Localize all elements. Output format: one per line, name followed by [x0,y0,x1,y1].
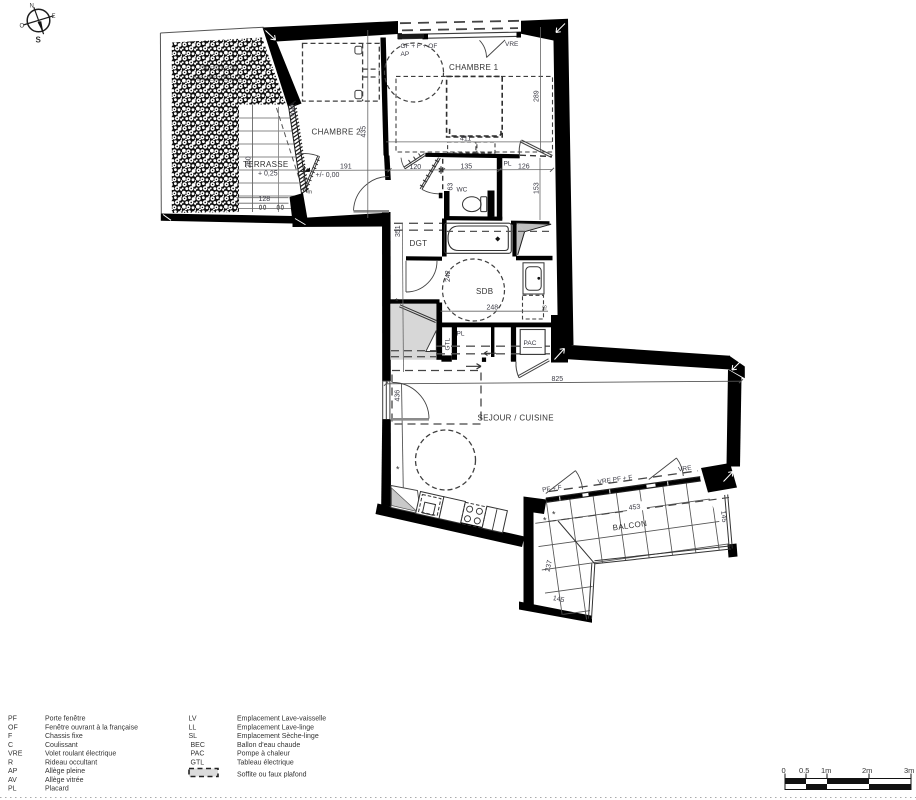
svg-text:+/- 0,00: +/- 0,00 [316,172,340,179]
svg-text:*: * [543,516,547,526]
svg-text:LV: LV [189,716,197,723]
svg-text:m: m [308,190,313,196]
svg-text:OF: OF [8,724,18,731]
svg-text:*: * [396,465,400,475]
svg-text:Rideau occultant: Rideau occultant [45,759,97,766]
svg-text:Pompe à chaleur: Pompe à chaleur [237,751,291,758]
svg-text:135: 135 [461,164,473,171]
svg-text:AP: AP [401,51,410,58]
svg-text:GTL: GTL [445,337,452,350]
svg-text:436: 436 [395,390,402,402]
svg-text:825: 825 [552,376,564,383]
svg-text:*: * [552,510,556,520]
svg-text:Allège pleine: Allège pleine [45,768,85,775]
svg-text:PAC: PAC [524,340,537,347]
svg-text:PL: PL [504,160,512,167]
svg-text:126: 126 [518,164,530,171]
svg-text:2m: 2m [862,766,872,775]
svg-text:Chassis fixe: Chassis fixe [45,733,83,740]
svg-text:O: O [20,24,25,30]
svg-text:0.5: 0.5 [799,766,809,775]
svg-text:VRE: VRE [8,751,23,758]
svg-text:BEC: BEC [191,742,205,749]
svg-text:411: 411 [460,136,471,143]
svg-text:E: E [52,14,56,20]
svg-text:PF: PF [8,716,17,723]
svg-text:Placard: Placard [45,786,69,793]
svg-text:289: 289 [534,90,541,102]
svg-text:Porte fenêtre: Porte fenêtre [45,716,86,723]
svg-text:145: 145 [719,510,727,523]
svg-text:CHAMBRE 2: CHAMBRE 2 [312,128,362,137]
svg-text:C: C [8,742,13,749]
svg-text:63: 63 [448,183,455,191]
svg-text:LL: LL [189,724,197,731]
svg-text:191: 191 [340,163,352,170]
svg-text:WC: WC [457,187,468,194]
svg-text:Coulissant: Coulissant [45,742,78,749]
svg-text:TERRASSE: TERRASSE [243,160,289,169]
svg-text:248: 248 [487,305,499,312]
svg-text:Emplacement Sèche-linge: Emplacement Sèche-linge [237,733,319,740]
svg-text:Fenêtre ouvrant à la française: Fenêtre ouvrant à la française [45,724,138,731]
svg-text:S: S [36,36,42,45]
svg-text:VRE: VRE [505,41,519,48]
svg-text:SL: SL [189,733,198,740]
svg-text:PL: PL [457,331,465,338]
svg-text:Ballon d'eau chaude: Ballon d'eau chaude [237,742,300,749]
svg-text:R: R [8,759,13,766]
svg-text:N: N [30,4,34,10]
svg-text:Tableau électrique: Tableau électrique [237,759,294,766]
svg-text:SEJOUR / CUISINE: SEJOUR / CUISINE [478,414,554,423]
svg-text:AV: AV [8,777,17,784]
svg-text:F: F [8,733,12,740]
svg-text:TERRASSE: TERRASSE [201,66,239,73]
svg-text:242: 242 [445,270,452,282]
svg-text:SDB: SDB [476,287,493,296]
svg-text:3m: 3m [904,766,914,775]
svg-text:DGT: DGT [410,239,428,248]
svg-text:351: 351 [395,225,402,237]
svg-text:435: 435 [361,126,368,138]
svg-text:*: * [395,297,399,307]
svg-text:+ 0,25: + 0,25 [258,171,278,178]
svg-text:Allège vitrée: Allège vitrée [45,777,84,784]
svg-text:m: m [303,177,308,183]
svg-text:PAC: PAC [191,751,205,758]
svg-text:128: 128 [259,196,271,203]
svg-text:Volet roulant électrique: Volet roulant électrique [45,751,116,758]
svg-text:Soffite ou faux plafond: Soffite ou faux plafond [237,772,307,779]
svg-text:PL: PL [8,786,17,793]
svg-text:CHAMBRE 1: CHAMBRE 1 [449,63,499,72]
svg-text:SL: SL [541,305,547,311]
svg-text:1m: 1m [821,766,831,775]
svg-text:Emplacement Lave-vaisselle: Emplacement Lave-vaisselle [237,716,326,723]
svg-text:AP: AP [8,768,18,775]
svg-text:Emplacement Lave-linge: Emplacement Lave-linge [237,724,314,731]
svg-text:INACCESSIBLE: INACCESSIBLE [192,76,243,83]
svg-text:GTL: GTL [191,759,205,766]
svg-text:153: 153 [534,182,541,194]
